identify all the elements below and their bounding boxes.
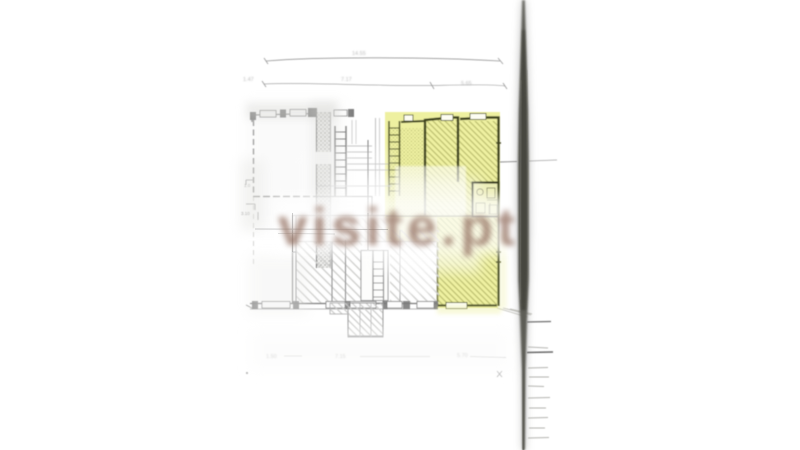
svg-text:14.55: 14.55 [352,51,366,57]
svg-text:5.65: 5.65 [461,81,472,87]
svg-text:7.17: 7.17 [341,77,352,83]
svg-text:visite.pt: visite.pt [278,198,520,257]
svg-text:1.47: 1.47 [243,77,254,83]
